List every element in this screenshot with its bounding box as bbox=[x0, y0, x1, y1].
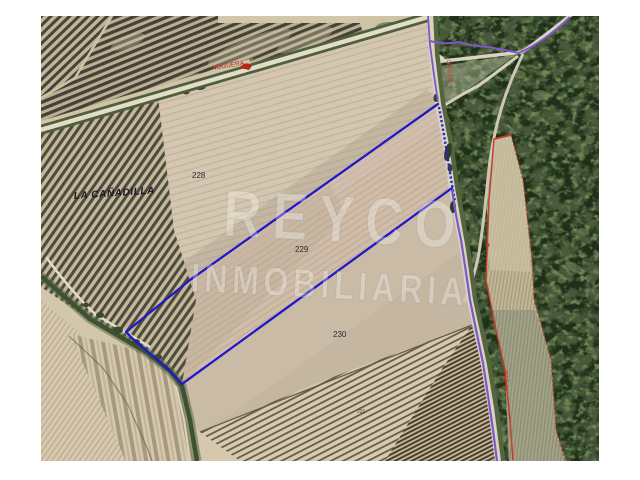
svg-text:A-312: A-312 bbox=[501, 370, 510, 390]
svg-text:CM-3127: CM-3127 bbox=[448, 59, 454, 84]
svg-text:231: 231 bbox=[357, 409, 366, 415]
svg-text:230: 230 bbox=[333, 330, 347, 339]
svg-text:228: 228 bbox=[192, 171, 206, 180]
svg-text:V: V bbox=[585, 18, 590, 25]
svg-text:REYCO: REYCO bbox=[221, 176, 468, 263]
